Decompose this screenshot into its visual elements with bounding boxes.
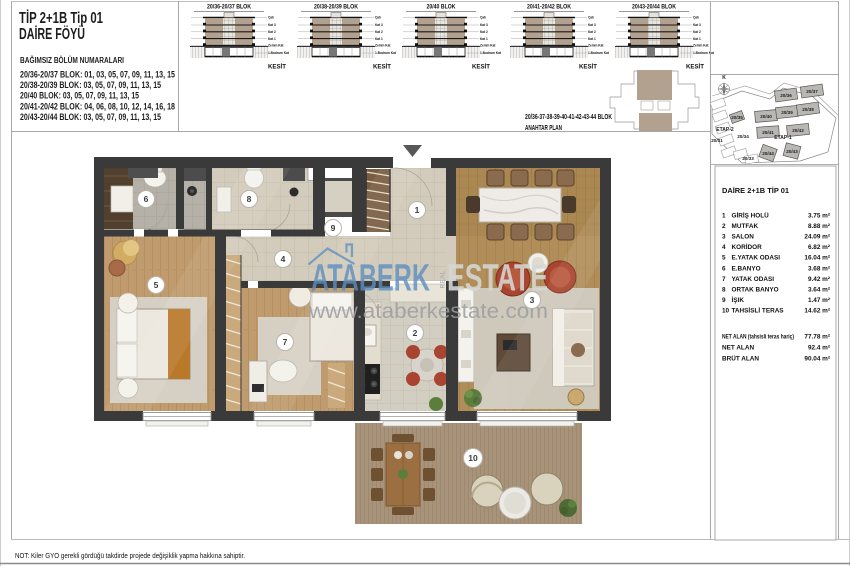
svg-text:1: 1 xyxy=(415,205,420,215)
svg-text:Çatı: Çatı xyxy=(375,16,381,20)
svg-text:DAİRE 2+1B TİP 01: DAİRE 2+1B TİP 01 xyxy=(722,186,790,195)
svg-text:9: 9 xyxy=(331,223,336,233)
svg-text:NET ALAN: NET ALAN xyxy=(722,345,754,352)
svg-text:Zemin Kat: Zemin Kat xyxy=(693,44,709,48)
svg-text:Çatı: Çatı xyxy=(480,16,486,20)
svg-text:1.Bodrum Kat: 1.Bodrum Kat xyxy=(693,51,715,55)
svg-text:4: 4 xyxy=(722,244,726,251)
svg-text:1: 1 xyxy=(722,213,726,220)
svg-text:9: 9 xyxy=(722,297,726,304)
svg-text:ORTAK BANYO: ORTAK BANYO xyxy=(732,286,779,293)
svg-text:20/36-20/37 BLOK: 01, 03, 05,: 20/36-20/37 BLOK: 01, 03, 05, 07, 09, 11… xyxy=(20,70,175,80)
svg-text:20/35: 20/35 xyxy=(731,115,743,120)
svg-text:Çatı: Çatı xyxy=(268,16,274,20)
svg-text:2: 2 xyxy=(413,328,418,338)
svg-text:Zemin Kat: Zemin Kat xyxy=(480,44,496,48)
svg-text:TAHSİSLİ TERAS: TAHSİSLİ TERAS xyxy=(732,305,785,314)
svg-text:Zemin Kat: Zemin Kat xyxy=(375,44,391,48)
svg-text:3: 3 xyxy=(530,295,535,305)
svg-text:DAİRE FÖYÜ: DAİRE FÖYÜ xyxy=(19,24,85,43)
svg-text:Çatı: Çatı xyxy=(693,16,699,20)
svg-text:20/43-20/44 BLOK: 20/43-20/44 BLOK xyxy=(632,4,676,11)
svg-text:KESİT: KESİT xyxy=(268,63,286,71)
svg-text:5: 5 xyxy=(154,280,159,290)
svg-text:Kat 1: Kat 1 xyxy=(588,37,596,41)
svg-text:GİRİŞ HOLÜ: GİRİŞ HOLÜ xyxy=(732,211,770,220)
svg-text:Kat 2: Kat 2 xyxy=(375,30,383,34)
svg-text:ATABERK: ATABERK xyxy=(311,258,430,300)
svg-text:20/42: 20/42 xyxy=(792,128,804,133)
svg-text:20/36-37-38-39-40-41-42-43-44: 20/36-37-38-39-40-41-42-43-44 BLOK xyxy=(525,114,612,121)
svg-text:10: 10 xyxy=(468,453,478,463)
svg-text:Kat 3: Kat 3 xyxy=(588,23,596,27)
svg-text:3.68 m²: 3.68 m² xyxy=(808,265,830,272)
svg-text:Kat 1: Kat 1 xyxy=(375,37,383,41)
svg-text:8: 8 xyxy=(247,194,252,204)
svg-text:E.BANYO: E.BANYO xyxy=(732,265,761,272)
svg-text:KESİT: KESİT xyxy=(472,63,490,71)
svg-text:Kat 3: Kat 3 xyxy=(268,23,276,27)
svg-text:6: 6 xyxy=(722,265,726,272)
svg-text:K: K xyxy=(722,75,726,81)
svg-text:20/36-20/37 BLOK: 20/36-20/37 BLOK xyxy=(207,4,251,11)
svg-text:REAL: REAL xyxy=(440,270,447,288)
svg-text:BRÜT ALAN: BRÜT ALAN xyxy=(722,354,759,363)
svg-text:Kat 2: Kat 2 xyxy=(268,30,276,34)
svg-text:20/38-20/39 BLOK: 03, 05, 07,: 20/38-20/39 BLOK: 03, 05, 07, 09, 11, 13… xyxy=(20,80,161,90)
svg-text:20/43-20/44 BLOK: 03, 05, 07,: 20/43-20/44 BLOK: 03, 05, 07, 09, 11, 13… xyxy=(20,112,161,122)
svg-text:20/41-20/42 BLOK: 04, 06, 08,: 20/41-20/42 BLOK: 04, 06, 08, 10, 12, 14… xyxy=(20,101,175,111)
svg-text:KORİDOR: KORİDOR xyxy=(732,242,763,251)
svg-text:77.78 m²: 77.78 m² xyxy=(804,334,830,341)
svg-text:Kat 3: Kat 3 xyxy=(693,23,701,27)
svg-text:Kat 3: Kat 3 xyxy=(480,23,488,27)
svg-text:10: 10 xyxy=(722,307,730,314)
svg-text:8.88 m²: 8.88 m² xyxy=(808,223,830,230)
svg-text:ETAP-2: ETAP-2 xyxy=(716,127,734,133)
svg-text:NOT: Kiler GYO gerekli gördüğü: NOT: Kiler GYO gerekli gördüğü takdirde … xyxy=(15,551,245,560)
svg-text:ETAP-1: ETAP-1 xyxy=(774,135,792,141)
svg-text:7: 7 xyxy=(722,276,726,283)
svg-text:20/36: 20/36 xyxy=(780,93,792,98)
svg-text:3.75 m²: 3.75 m² xyxy=(808,213,830,220)
svg-text:YATAK ODASI: YATAK ODASI xyxy=(732,276,775,283)
svg-text:20/40: 20/40 xyxy=(760,114,772,119)
svg-text:20/44: 20/44 xyxy=(762,151,774,156)
svg-text:Çatı: Çatı xyxy=(588,16,594,20)
svg-text:6: 6 xyxy=(144,194,149,204)
svg-text:Kat 2: Kat 2 xyxy=(588,30,596,34)
svg-text:1.Bodrum Kat: 1.Bodrum Kat xyxy=(588,51,610,55)
svg-text:20/38: 20/38 xyxy=(802,107,814,112)
svg-text:20/34: 20/34 xyxy=(737,134,749,139)
svg-text:MUTFAK: MUTFAK xyxy=(732,223,759,230)
svg-text:www.ataberkestate.com: www.ataberkestate.com xyxy=(308,300,548,323)
svg-text:Kat 1: Kat 1 xyxy=(693,37,701,41)
svg-text:BAĞIMSIZ BÖLÜM NUMARALARI: BAĞIMSIZ BÖLÜM NUMARALARI xyxy=(20,54,124,65)
svg-text:1.Bodrum Kat: 1.Bodrum Kat xyxy=(375,51,397,55)
svg-text:ANAHTAR PLAN: ANAHTAR PLAN xyxy=(525,125,562,132)
svg-text:4: 4 xyxy=(281,254,286,264)
svg-text:3.64 m²: 3.64 m² xyxy=(808,286,830,293)
svg-text:20/43: 20/43 xyxy=(786,149,798,154)
svg-text:Kat 2: Kat 2 xyxy=(480,30,488,34)
svg-text:Kat 1: Kat 1 xyxy=(480,37,488,41)
svg-text:KESİT: KESİT xyxy=(686,63,704,71)
svg-text:2: 2 xyxy=(722,223,726,230)
svg-text:20/40 BLOK: 20/40 BLOK xyxy=(427,4,456,11)
svg-text:KESİT: KESİT xyxy=(579,63,597,71)
svg-text:20/41: 20/41 xyxy=(762,130,774,135)
svg-text:92.4 m²: 92.4 m² xyxy=(808,345,830,352)
svg-text:5: 5 xyxy=(722,255,726,262)
svg-text:1.Bodrum Kat: 1.Bodrum Kat xyxy=(480,51,502,55)
svg-text:8: 8 xyxy=(722,286,726,293)
svg-text:Kat 3: Kat 3 xyxy=(375,23,383,27)
svg-text:9.42 m²: 9.42 m² xyxy=(808,276,830,283)
svg-text:İŞIK: İŞIK xyxy=(732,295,745,304)
svg-text:20/37: 20/37 xyxy=(806,89,818,94)
svg-text:Zemin Kat: Zemin Kat xyxy=(588,44,604,48)
svg-text:1.47 m²: 1.47 m² xyxy=(808,297,830,304)
svg-text:24.09 m²: 24.09 m² xyxy=(804,234,830,241)
svg-text:Kat 2: Kat 2 xyxy=(693,30,701,34)
svg-text:NET ALAN (tahsisli teras hariç: NET ALAN (tahsisli teras hariç) xyxy=(722,334,794,341)
svg-text:Zemin Kat: Zemin Kat xyxy=(268,44,284,48)
svg-text:SALON: SALON xyxy=(732,234,755,241)
svg-text:20/41-20/42 BLOK: 20/41-20/42 BLOK xyxy=(527,4,571,11)
svg-text:E.YATAK ODASI: E.YATAK ODASI xyxy=(732,255,781,262)
svg-text:20/40 BLOK: 03, 05, 07, 09, 11: 20/40 BLOK: 03, 05, 07, 09, 11, 13, 15 xyxy=(20,91,139,101)
svg-text:20/33: 20/33 xyxy=(742,156,754,161)
svg-text:TİP 2+1B Tip 01: TİP 2+1B Tip 01 xyxy=(19,9,103,27)
svg-text:14.62 m²: 14.62 m² xyxy=(804,307,830,314)
svg-text:1.Bodrum Kat: 1.Bodrum Kat xyxy=(268,51,290,55)
svg-text:7: 7 xyxy=(283,337,288,347)
svg-text:20/39: 20/39 xyxy=(781,110,793,115)
svg-text:90.04 m²: 90.04 m² xyxy=(804,356,830,363)
svg-text:20/31: 20/31 xyxy=(711,138,723,143)
svg-text:6.82 m²: 6.82 m² xyxy=(808,244,830,251)
svg-text:Kat 1: Kat 1 xyxy=(268,37,276,41)
svg-text:20/38-20/39 BLOK: 20/38-20/39 BLOK xyxy=(314,4,358,11)
svg-text:16.04 m²: 16.04 m² xyxy=(804,255,830,262)
svg-text:KESİT: KESİT xyxy=(373,63,391,71)
svg-text:3: 3 xyxy=(722,234,726,241)
